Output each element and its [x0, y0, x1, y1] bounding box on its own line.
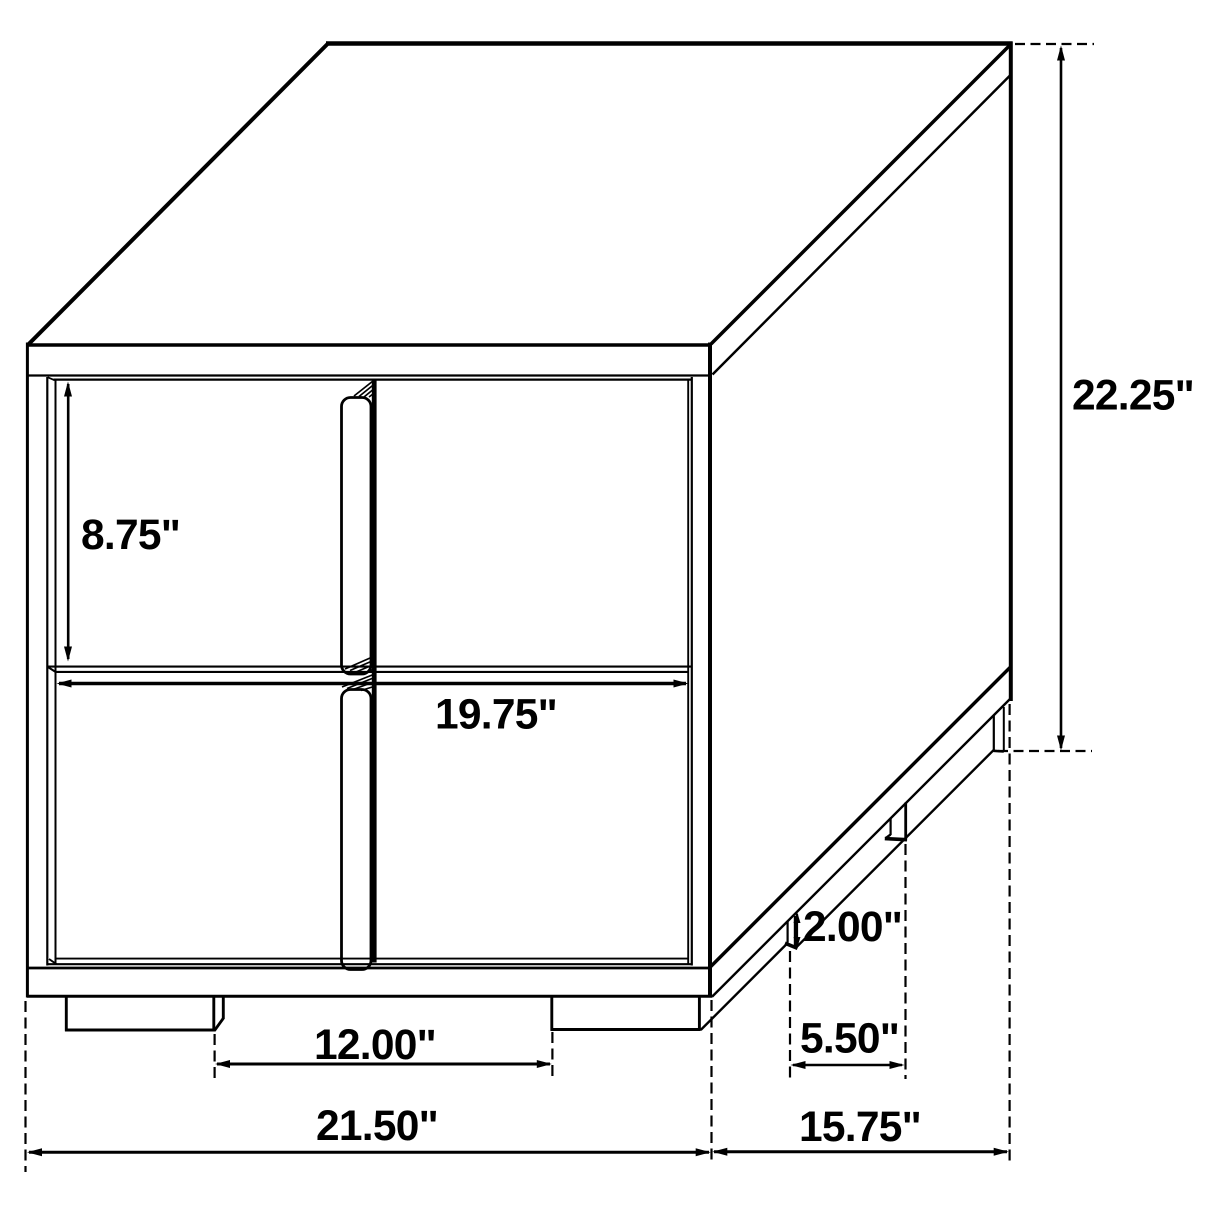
svg-text:22.25": 22.25"	[1072, 373, 1194, 420]
svg-text:19.75": 19.75"	[435, 692, 557, 739]
svg-text:8.75": 8.75"	[81, 512, 180, 559]
svg-text:21.50": 21.50"	[316, 1103, 438, 1150]
svg-text:12.00": 12.00"	[314, 1022, 436, 1069]
svg-text:5.50": 5.50"	[800, 1016, 899, 1063]
svg-text:2.00": 2.00"	[803, 904, 902, 951]
svg-text:15.75": 15.75"	[799, 1104, 921, 1151]
